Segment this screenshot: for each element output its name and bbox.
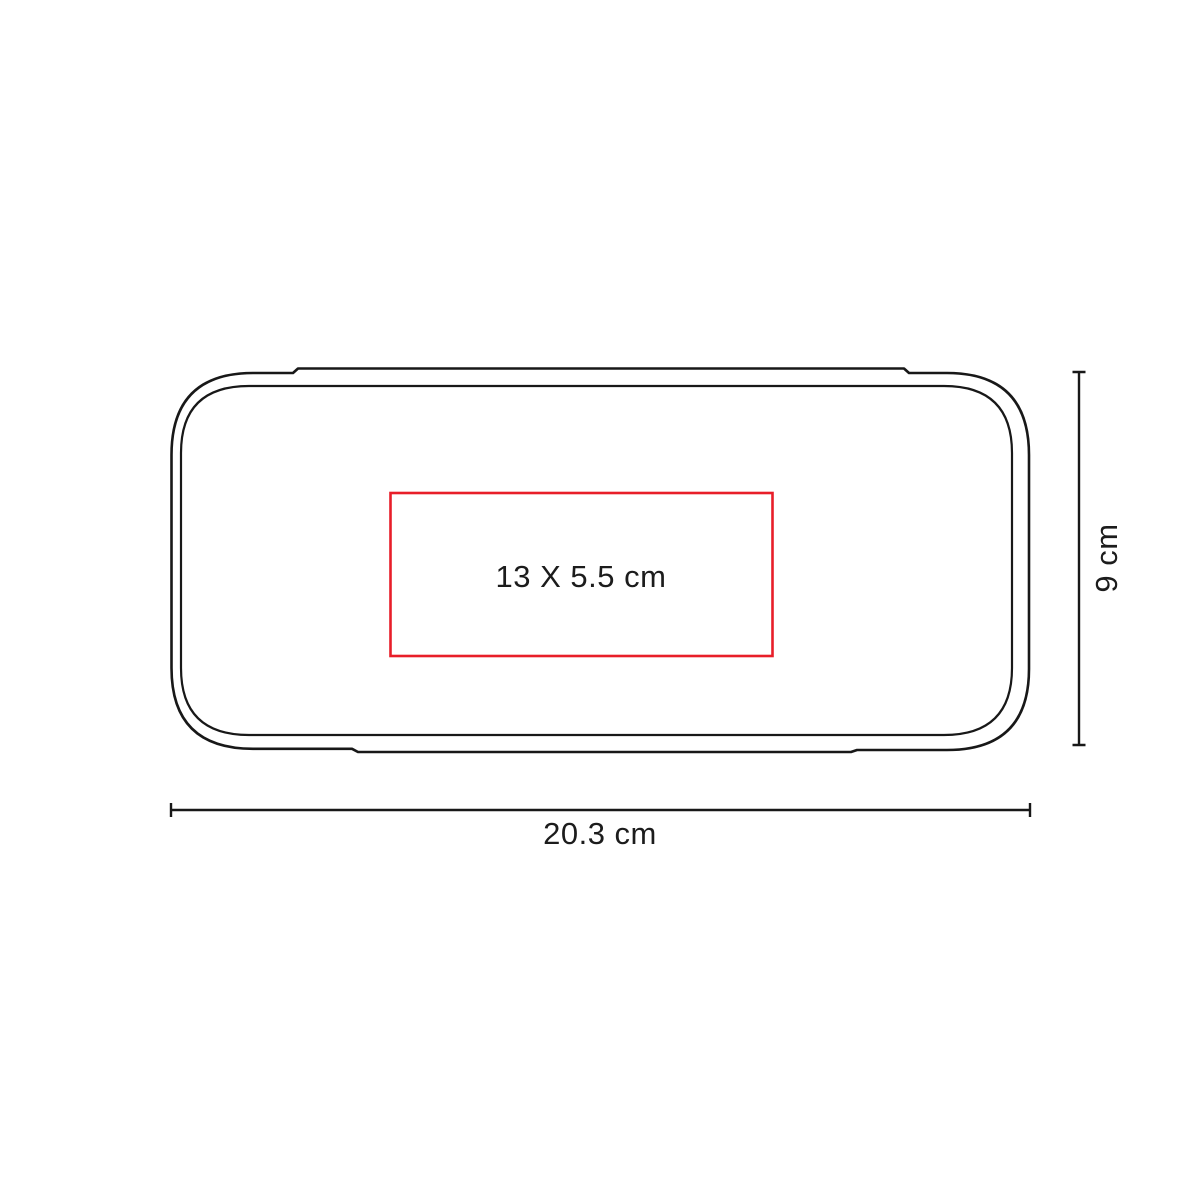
tin-case-dimension-drawing: 13 X 5.5 cm 20.3 cm 9 cm <box>0 0 1200 1200</box>
product-spec-diagram: 13 X 5.5 cm 20.3 cm 9 cm <box>0 0 1200 1200</box>
print-area-label: 13 X 5.5 cm <box>496 559 667 594</box>
width-dimension-label: 20.3 cm <box>543 816 657 851</box>
height-dimension-label: 9 cm <box>1089 523 1124 592</box>
